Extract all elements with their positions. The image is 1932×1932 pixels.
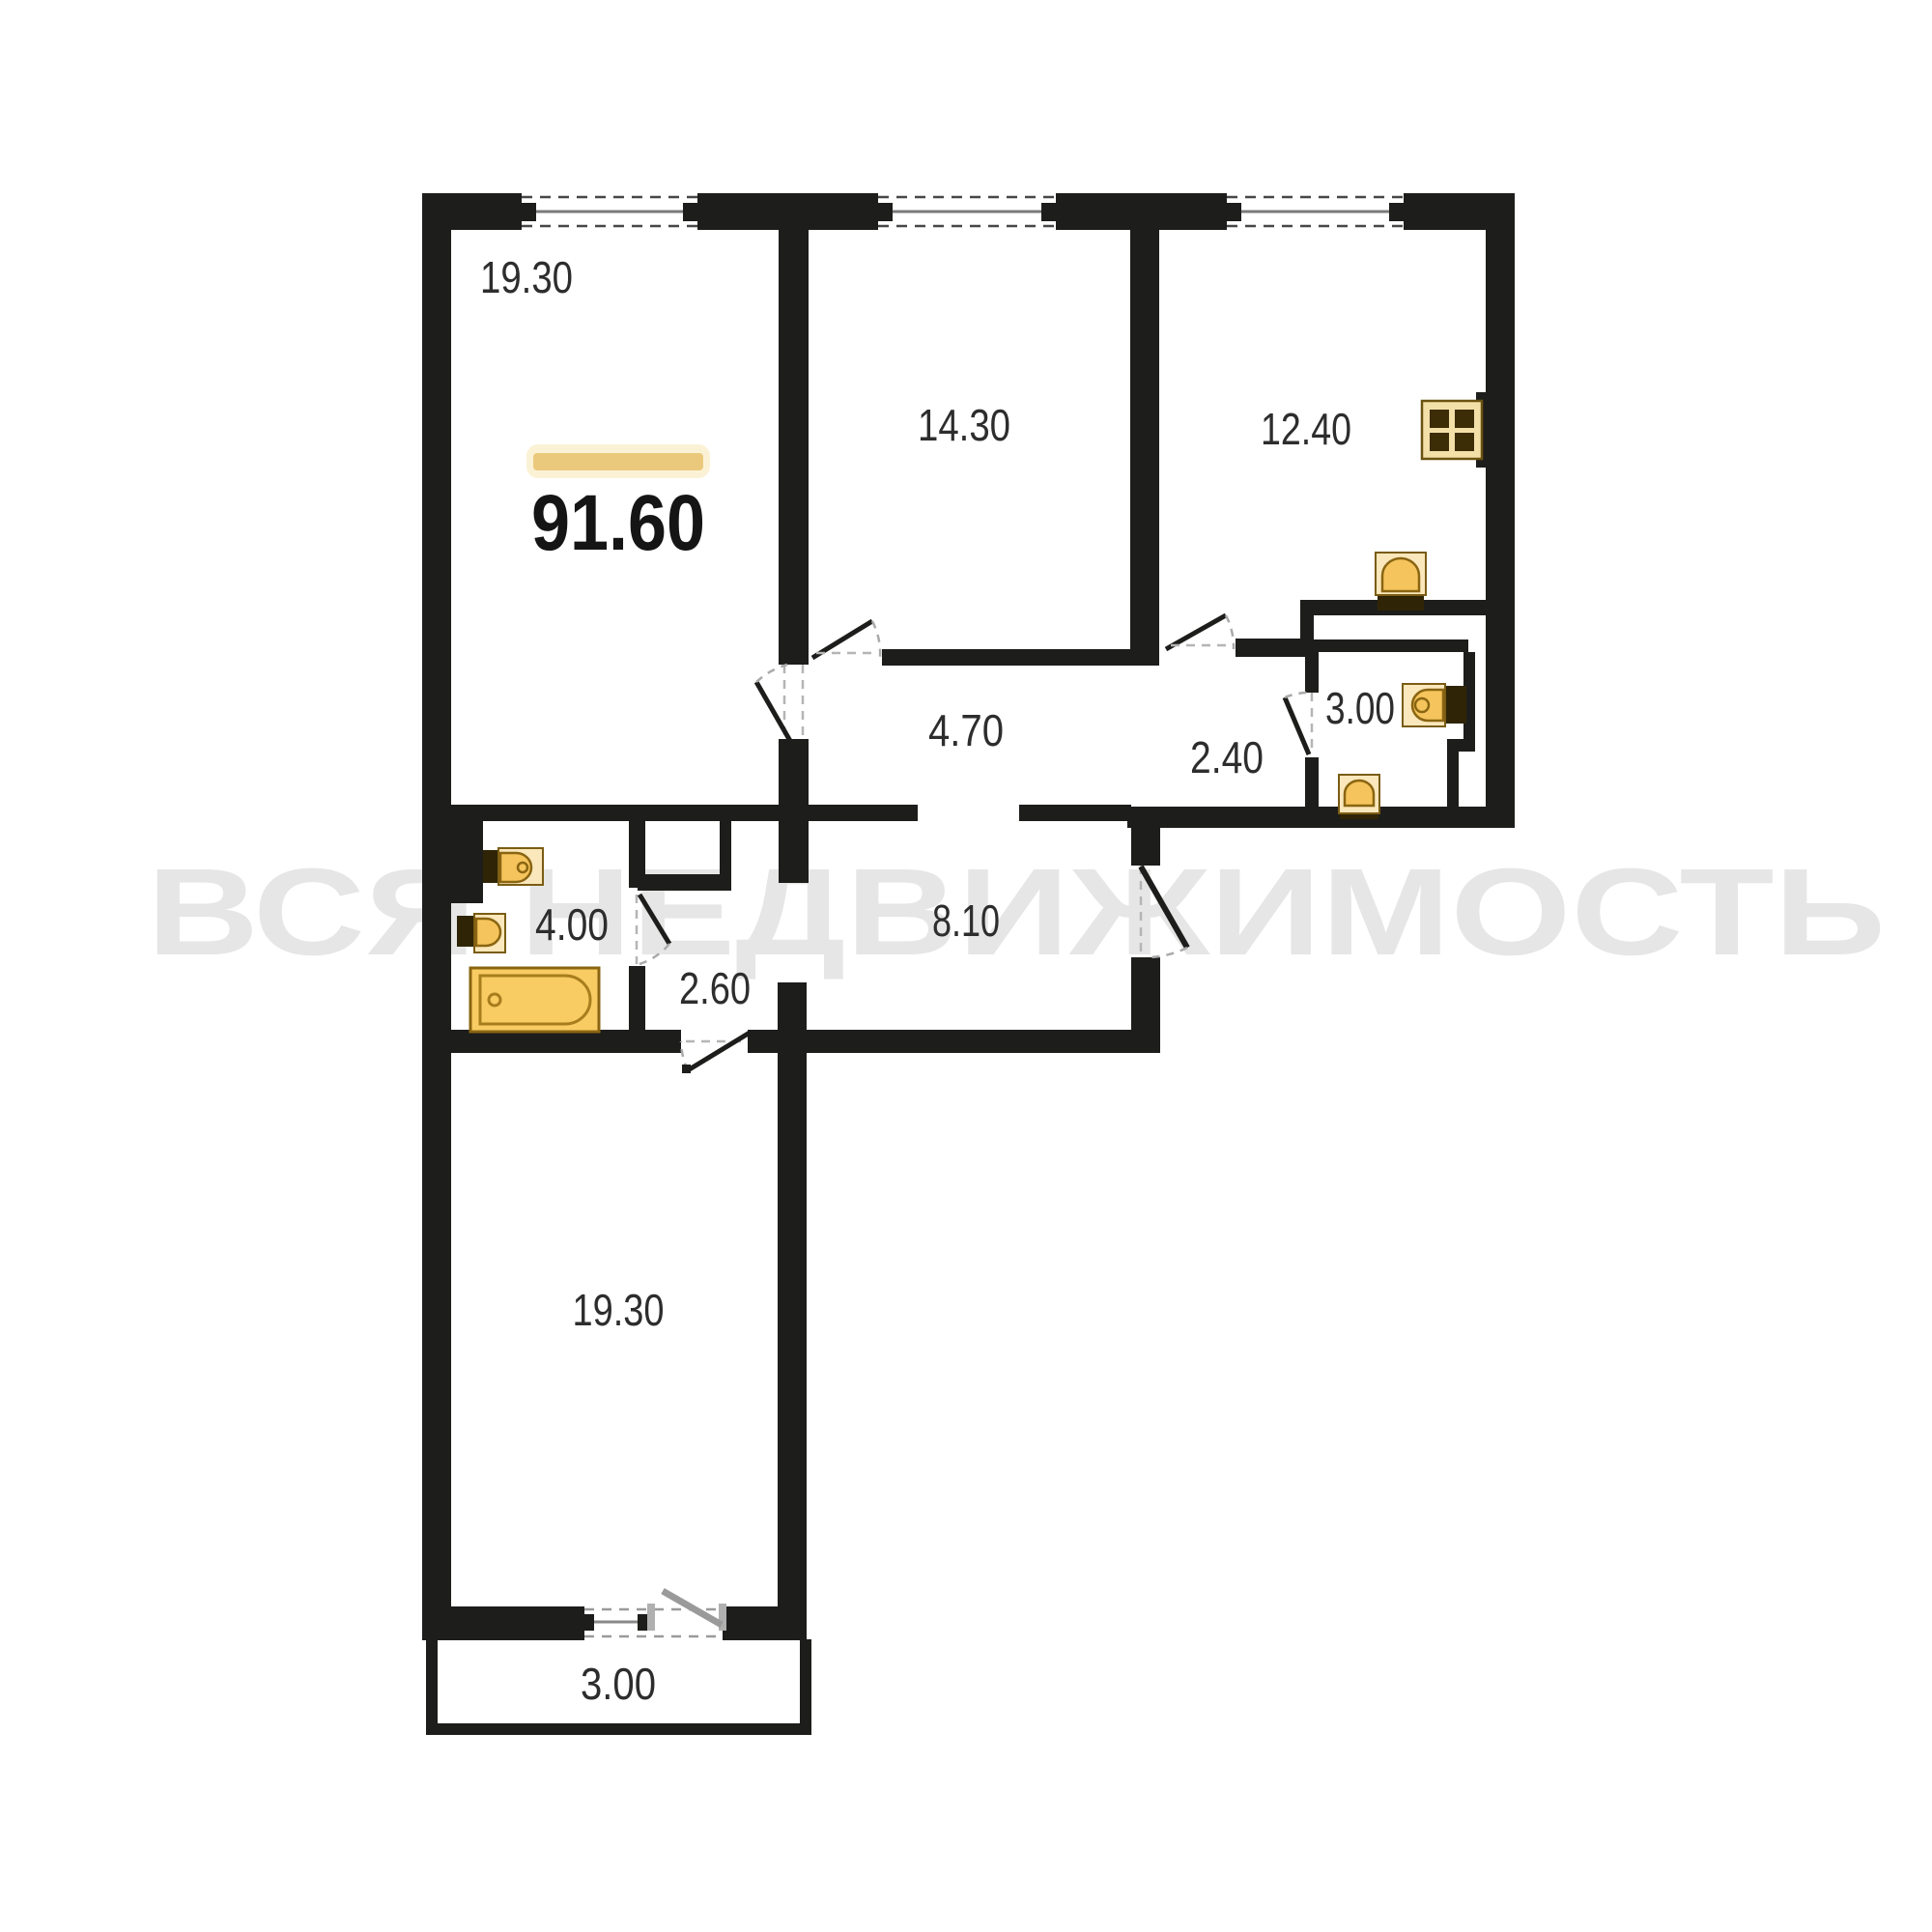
svg-text:12.40: 12.40	[1261, 404, 1351, 454]
svg-text:4.70: 4.70	[928, 705, 1004, 755]
svg-text:2.60: 2.60	[679, 963, 751, 1013]
svg-text:3.00: 3.00	[1325, 683, 1395, 733]
svg-text:91.60: 91.60	[531, 479, 705, 567]
svg-text:4.00: 4.00	[535, 899, 609, 950]
svg-text:19.30: 19.30	[480, 252, 573, 302]
svg-text:14.30: 14.30	[918, 400, 1010, 450]
svg-text:19.30: 19.30	[573, 1285, 665, 1335]
svg-text:3.00: 3.00	[581, 1659, 656, 1709]
svg-text:2.40: 2.40	[1190, 732, 1264, 782]
svg-text:ВСЯ НЕДВИЖИМОСТЬ: ВСЯ НЕДВИЖИМОСТЬ	[147, 843, 1886, 981]
svg-text:8.10: 8.10	[932, 895, 1000, 946]
